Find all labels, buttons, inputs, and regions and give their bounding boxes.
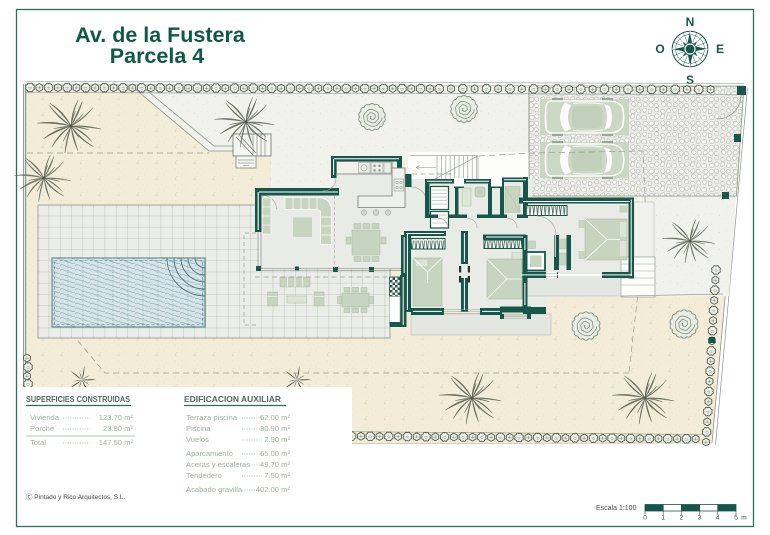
svg-text:1: 1 [661, 515, 665, 522]
svg-text:30.90 m²: 30.90 m² [260, 424, 290, 433]
svg-text:Escala 1:100: Escala 1:100 [596, 505, 637, 512]
svg-text:EDIFICACION AUXILIAR: EDIFICACION AUXILIAR [184, 394, 281, 404]
svg-text:m: m [741, 515, 746, 522]
svg-text:S: S [686, 73, 694, 87]
svg-text:49.70 m²: 49.70 m² [260, 460, 290, 469]
svg-text:Ⓒ Pintado y Rico Arquitectos,: Ⓒ Pintado y Rico Arquitectos, S.L. [26, 493, 126, 501]
svg-text:402.00 m²: 402.00 m² [256, 485, 291, 494]
svg-text:5: 5 [734, 515, 738, 522]
svg-text:4: 4 [716, 515, 720, 522]
svg-text:7.50 m²: 7.50 m² [264, 471, 290, 480]
svg-text:Parcela 4: Parcela 4 [110, 44, 204, 68]
svg-text:Acabado gravilla: Acabado gravilla [186, 485, 243, 494]
svg-text:65.00 m²: 65.00 m² [260, 449, 290, 458]
svg-text:Vuelos: Vuelos [186, 435, 209, 444]
svg-text:Aparcamiento: Aparcamiento [186, 449, 233, 458]
svg-text:2: 2 [680, 515, 684, 522]
svg-text:3: 3 [698, 515, 702, 522]
svg-text:Vivienda: Vivienda [30, 413, 60, 422]
svg-text:123.70 m²: 123.70 m² [99, 413, 134, 422]
svg-text:2.90 m²: 2.90 m² [264, 435, 290, 444]
svg-text:Terraza piscina: Terraza piscina [186, 413, 238, 422]
svg-text:Aceras y escaleras: Aceras y escaleras [186, 460, 250, 469]
svg-text:O: O [655, 42, 664, 56]
svg-text:N: N [686, 15, 695, 29]
svg-text:SUPERFICIES CONSTRUIDAS: SUPERFICIES CONSTRUIDAS [26, 394, 130, 404]
svg-text:Porche: Porche [30, 424, 54, 433]
svg-text:0: 0 [643, 515, 647, 522]
svg-text:Piscina: Piscina [186, 424, 211, 433]
svg-text:23.80 m²: 23.80 m² [103, 424, 133, 433]
svg-text:62.00 m²: 62.00 m² [260, 413, 290, 422]
svg-text:Total: Total [30, 438, 46, 447]
svg-text:147.50 m²: 147.50 m² [99, 438, 134, 447]
svg-text:Tendedero: Tendedero [186, 471, 222, 480]
svg-text:E: E [716, 42, 724, 56]
